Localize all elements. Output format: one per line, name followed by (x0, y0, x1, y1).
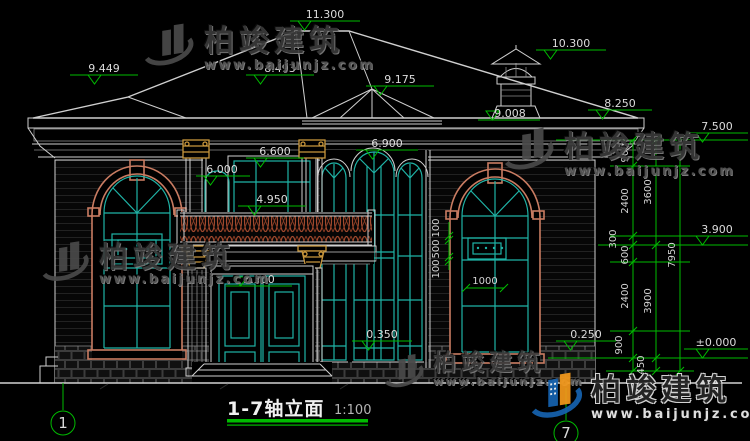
dim-label: 7950 (667, 242, 678, 267)
dim-label: 600 (620, 245, 631, 264)
svg-text:0.350: 0.350 (366, 328, 398, 341)
svg-text:9.008: 9.008 (494, 107, 526, 120)
dim-label: 3900 (643, 288, 654, 313)
elevation-label: 11.300 (306, 8, 345, 21)
svg-text:8.250: 8.250 (604, 97, 636, 110)
svg-text:6.000: 6.000 (206, 163, 238, 176)
dim-label: 2400 (620, 188, 631, 213)
axis-marker-left: 1 (51, 383, 75, 435)
elevation-marker-bay-hip: 9.175 (366, 73, 434, 95)
svg-text:9.449: 9.449 (88, 62, 120, 75)
dim-label: 300 (608, 229, 619, 248)
elevation-marker-left-roof: 9.449 (70, 62, 138, 84)
elevation-marker-ground: ±0.000 (684, 336, 748, 358)
svg-text:±0.000: ±0.000 (696, 336, 737, 349)
axis-label: 1 (58, 414, 68, 432)
svg-text:0.250: 0.250 (570, 328, 602, 341)
dim-label: 900 (620, 143, 631, 162)
svg-text:7.500: 7.500 (701, 120, 733, 133)
right-arched-window (446, 163, 544, 363)
ground-line (0, 383, 742, 389)
svg-text:4.950: 4.950 (256, 193, 288, 206)
dim-label: 100 (431, 259, 442, 278)
elevation-marker-mid-roof: 8.493 (246, 62, 314, 84)
title-block: 1-7轴立面 1:100 (227, 397, 371, 426)
dim-label: 3600 (643, 179, 654, 204)
axis-marker-right: 7 (554, 388, 578, 441)
dim-label: 100 (431, 218, 442, 237)
dim-label: 500 (431, 239, 442, 258)
svg-text:6.900: 6.900 (371, 137, 403, 150)
svg-text:3.900: 3.900 (701, 223, 733, 236)
elevation-marker-wall-top: 7.500 (686, 120, 748, 142)
elevation-marker-f2-floor: 3.900 (686, 223, 748, 245)
elevation-marker-ridge: 11.300 (290, 8, 360, 30)
svg-text:6.600: 6.600 (259, 145, 291, 158)
title-underline (227, 419, 368, 423)
svg-text:9.175: 9.175 (384, 73, 416, 86)
left-arched-window (88, 160, 186, 360)
dim-label: 1000 (472, 276, 497, 287)
main-roof (33, 31, 638, 124)
second-floor-center (183, 140, 325, 224)
svg-text:8.493: 8.493 (264, 62, 296, 75)
svg-text:3.300: 3.300 (243, 273, 275, 286)
cad-elevation-canvas: 11.300 10.300 9.449 8.493 9.175 9.008 8.… (0, 0, 750, 441)
drawing-scale: 1:100 (334, 403, 371, 418)
svg-text:10.300: 10.300 (552, 37, 591, 50)
dim-label: 900 (614, 335, 625, 354)
elevation-drawing: 11.300 10.300 9.449 8.493 9.175 9.008 8.… (0, 0, 750, 441)
axis-label: 7 (561, 424, 571, 441)
entrance-steps (192, 362, 332, 383)
dim-label: 2400 (620, 283, 631, 308)
elevation-marker-right-eave: 8.250 (588, 97, 652, 119)
drawing-title: 1-7轴立面 (227, 397, 324, 420)
dim-label: 450 (636, 355, 647, 374)
elevation-marker-cupola: 10.300 (536, 37, 606, 59)
